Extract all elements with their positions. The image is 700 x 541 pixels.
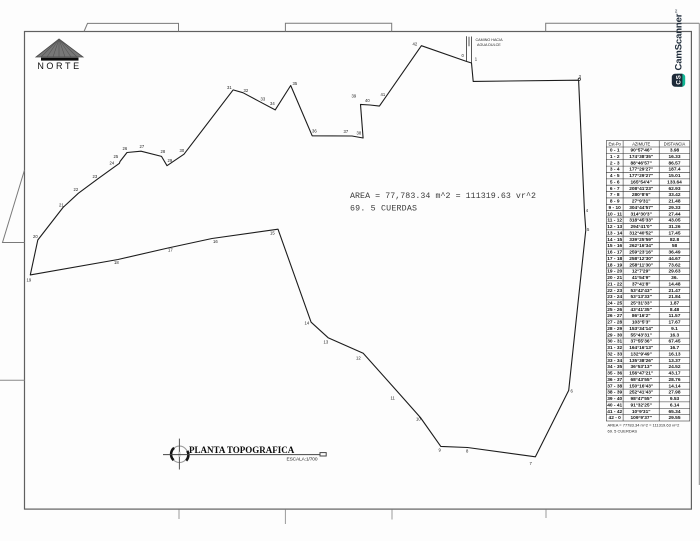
svg-text:PLANTA TOPOGRAFICA: PLANTA TOPOGRAFICA — [189, 445, 295, 455]
svg-text:25°31'33": 25°31'33" — [631, 300, 652, 306]
svg-text:153°34'14": 153°34'14" — [629, 326, 653, 332]
svg-text:30: 30 — [180, 148, 185, 153]
svg-text:252°41'43": 252°41'43" — [629, 390, 653, 396]
svg-text:39: 39 — [352, 94, 357, 99]
svg-text:35 - 36: 35 - 36 — [607, 371, 622, 377]
svg-text:174°38'35": 174°38'35" — [629, 154, 653, 160]
svg-text:17: 17 — [168, 248, 173, 253]
svg-text:7 - 8: 7 - 8 — [610, 192, 620, 198]
svg-text:86°16'2": 86°16'2" — [632, 313, 651, 319]
svg-text:132°9'49": 132°9'49" — [631, 351, 652, 357]
svg-text:156°47'21": 156°47'21" — [629, 371, 653, 377]
svg-text:9.1: 9.1 — [671, 326, 678, 332]
svg-text:44.67: 44.67 — [668, 256, 680, 262]
svg-text:14 - 15: 14 - 15 — [607, 237, 622, 243]
svg-text:16.3: 16.3 — [670, 332, 680, 338]
svg-text:CS: CS — [675, 75, 682, 85]
svg-text:26: 26 — [123, 146, 128, 151]
svg-text:40 - 41: 40 - 41 — [607, 402, 622, 408]
svg-text:8: 8 — [466, 449, 469, 454]
svg-text:258°11'30": 258°11'30" — [629, 262, 653, 268]
svg-text:208°41'23": 208°41'23" — [629, 186, 653, 192]
svg-text:26 - 27: 26 - 27 — [607, 313, 622, 319]
svg-text:1.87: 1.87 — [670, 300, 680, 306]
svg-text:29 - 30: 29 - 30 — [607, 332, 622, 338]
svg-text:34: 34 — [270, 101, 275, 106]
svg-text:86.57: 86.57 — [668, 160, 680, 166]
svg-text:NORTE: NORTE — [37, 61, 81, 71]
svg-text:33: 33 — [261, 97, 266, 102]
svg-text:AREA = 77783.34 m^2 = 111319.6: AREA = 77783.34 m^2 = 111319.63 vr^2 — [608, 423, 681, 428]
svg-text:187.4: 187.4 — [668, 167, 680, 173]
svg-text:0: 0 — [462, 53, 465, 58]
svg-text:32: 32 — [244, 88, 249, 93]
svg-text:31 - 32: 31 - 32 — [607, 345, 622, 351]
svg-text:36: 36 — [312, 129, 317, 134]
svg-text:36.49: 36.49 — [668, 250, 680, 256]
svg-text:21 - 22: 21 - 22 — [607, 281, 622, 287]
svg-text:6 - 7: 6 - 7 — [610, 186, 620, 192]
svg-text:18: 18 — [114, 260, 119, 265]
svg-text:7: 7 — [530, 461, 533, 466]
svg-text:314°30'3": 314°30'3" — [631, 211, 652, 217]
svg-text:1: 1 — [475, 57, 478, 62]
svg-text:33.42: 33.42 — [668, 192, 680, 198]
svg-text:90°57'46": 90°57'46" — [631, 148, 652, 154]
svg-text:21.47: 21.47 — [668, 288, 680, 294]
svg-text:41 - 42: 41 - 42 — [607, 409, 622, 415]
svg-text:2 - 3: 2 - 3 — [610, 160, 620, 166]
svg-text:29: 29 — [168, 158, 173, 163]
svg-text:41: 41 — [381, 92, 386, 97]
svg-text:73.62: 73.62 — [668, 262, 680, 268]
svg-text:ESCALA:1/700: ESCALA:1/700 — [287, 457, 318, 463]
svg-text:177°29'27": 177°29'27" — [629, 173, 653, 179]
svg-text:27.44: 27.44 — [668, 211, 680, 217]
svg-text:4 - 5: 4 - 5 — [610, 173, 620, 179]
svg-text:6: 6 — [571, 389, 574, 394]
svg-text:19: 19 — [27, 278, 32, 283]
svg-text:13 - 14: 13 - 14 — [607, 230, 622, 236]
svg-text:17.67: 17.67 — [668, 320, 680, 326]
svg-text:58: 58 — [672, 243, 678, 249]
svg-text:259°23'16": 259°23'16" — [629, 250, 653, 256]
svg-text:65.34: 65.34 — [668, 409, 680, 415]
svg-text:280°8'6": 280°8'6" — [632, 192, 651, 198]
svg-text:23: 23 — [93, 174, 98, 179]
svg-text:21.84: 21.84 — [668, 294, 680, 300]
svg-text:294°41'0": 294°41'0" — [631, 224, 652, 230]
svg-text:11 - 12: 11 - 12 — [607, 218, 622, 224]
svg-text:13.37: 13.37 — [668, 358, 680, 364]
svg-text:5: 5 — [587, 227, 590, 232]
svg-text:18 - 19: 18 - 19 — [607, 262, 622, 268]
svg-text:0 - 1: 0 - 1 — [610, 148, 620, 154]
svg-text:69. 5 CUERDAS: 69. 5 CUERDAS — [350, 205, 417, 214]
svg-text:103°5'3": 103°5'3" — [632, 320, 651, 326]
svg-text:10: 10 — [416, 417, 421, 422]
svg-text:12: 12 — [356, 356, 361, 361]
svg-text:15: 15 — [270, 231, 275, 236]
svg-text:22: 22 — [74, 187, 79, 192]
svg-text:40: 40 — [365, 98, 370, 103]
svg-text:37: 37 — [344, 129, 349, 134]
svg-text:33 - 34: 33 - 34 — [607, 358, 622, 364]
svg-text:28 - 29: 28 - 29 — [607, 326, 622, 332]
svg-text:8 - 9: 8 - 9 — [610, 199, 620, 205]
svg-text:36 - 37: 36 - 37 — [607, 377, 622, 383]
svg-text:21: 21 — [59, 203, 64, 208]
svg-text:DISTANCIA: DISTANCIA — [664, 141, 686, 146]
svg-text:258°12'30": 258°12'30" — [629, 256, 653, 262]
svg-text:39 - 40: 39 - 40 — [607, 396, 622, 402]
svg-text:68°43'55": 68°43'55" — [631, 377, 652, 383]
svg-text:Est-Po: Est-Po — [609, 141, 622, 146]
svg-text:88°46'57": 88°46'57" — [631, 160, 652, 166]
svg-text:69. 5 CUERDAS: 69. 5 CUERDAS — [608, 429, 638, 434]
svg-text:5 - 6: 5 - 6 — [610, 179, 620, 185]
svg-text:24 - 25: 24 - 25 — [607, 300, 622, 306]
svg-text:24.52: 24.52 — [668, 364, 680, 370]
svg-text:109°9'37": 109°9'37" — [631, 415, 652, 421]
svg-text:133.64: 133.64 — [667, 179, 682, 185]
svg-text:42 - 0: 42 - 0 — [609, 415, 622, 421]
svg-text:37 - 38: 37 - 38 — [607, 383, 622, 389]
svg-text:38 - 39: 38 - 39 — [607, 390, 622, 396]
svg-text:34 - 35: 34 - 35 — [607, 364, 622, 370]
svg-text:10°9'31": 10°9'31" — [632, 409, 651, 415]
svg-text:11: 11 — [391, 396, 396, 401]
svg-text:165°54'4": 165°54'4" — [631, 179, 652, 185]
svg-text:38: 38 — [357, 131, 362, 136]
svg-text:31: 31 — [227, 85, 232, 90]
svg-text:98°47'55": 98°47'55" — [631, 396, 652, 402]
svg-text:24: 24 — [110, 161, 115, 166]
svg-text:29.33: 29.33 — [668, 205, 680, 211]
svg-text:16 - 17: 16 - 17 — [607, 250, 622, 256]
svg-text:9: 9 — [439, 448, 442, 453]
svg-text:AGUA DULCE: AGUA DULCE — [477, 43, 501, 47]
svg-text:29.63: 29.63 — [668, 269, 680, 275]
svg-text:25: 25 — [114, 154, 119, 159]
svg-text:23 - 24: 23 - 24 — [607, 294, 622, 300]
svg-text:15.01: 15.01 — [668, 173, 680, 179]
svg-text:21.48: 21.48 — [668, 199, 680, 205]
svg-text:262°16'34": 262°16'34" — [629, 243, 653, 249]
svg-text:177°29'27": 177°29'27" — [629, 167, 653, 173]
svg-text:20 - 21: 20 - 21 — [607, 275, 622, 281]
svg-text:37°55'36": 37°55'36" — [631, 339, 652, 345]
svg-text:12 - 13: 12 - 13 — [607, 224, 622, 230]
svg-text:11.57: 11.57 — [669, 313, 681, 319]
svg-text:43°41'35": 43°41'35" — [631, 307, 652, 313]
svg-text:AREA = 77,783.34 m^2 = 111319.: AREA = 77,783.34 m^2 = 111319.63 vr^2 — [350, 192, 536, 201]
svg-text:1 - 2: 1 - 2 — [610, 154, 620, 160]
svg-text:304°44'57": 304°44'57" — [629, 205, 653, 211]
svg-text:35: 35 — [293, 81, 298, 86]
svg-text:19 - 20: 19 - 20 — [607, 269, 622, 275]
svg-text:15 - 16: 15 - 16 — [607, 243, 622, 249]
svg-text:25 - 26: 25 - 26 — [607, 307, 622, 313]
svg-text:42: 42 — [413, 42, 418, 47]
svg-text:6.14: 6.14 — [670, 402, 680, 408]
svg-text:AZIMUTE: AZIMUTE — [632, 141, 650, 146]
svg-text:43.17: 43.17 — [668, 371, 680, 377]
svg-text:43.05: 43.05 — [668, 218, 680, 224]
svg-text:27: 27 — [140, 144, 145, 149]
svg-text:9.53: 9.53 — [670, 396, 680, 402]
svg-text:17.45: 17.45 — [668, 230, 680, 236]
svg-text:36°53'13": 36°53'13" — [631, 364, 652, 370]
svg-text:27 - 28: 27 - 28 — [607, 320, 622, 326]
svg-text:CAMINO HACIA: CAMINO HACIA — [476, 38, 504, 42]
svg-text:4: 4 — [586, 208, 589, 213]
svg-text:67.45: 67.45 — [668, 339, 680, 345]
svg-text:53°42'43": 53°42'43" — [631, 288, 652, 294]
svg-text:30 - 31: 30 - 31 — [607, 339, 622, 345]
svg-text:8.48: 8.48 — [670, 307, 680, 313]
svg-text:312°40'52": 312°40'52" — [629, 230, 653, 236]
svg-text:9 - 10: 9 - 10 — [609, 205, 622, 211]
svg-text:36.: 36. — [671, 275, 678, 281]
svg-text:150°16'43": 150°16'43" — [629, 383, 653, 389]
svg-text:339°25'59": 339°25'59" — [629, 237, 653, 243]
svg-text:164°16'13": 164°16'13" — [629, 345, 653, 351]
svg-text:12°7'29": 12°7'29" — [632, 269, 651, 275]
svg-text:62.93: 62.93 — [668, 186, 680, 192]
svg-text:37°41'8": 37°41'8" — [632, 281, 651, 287]
svg-text:3: 3 — [579, 74, 582, 79]
svg-text:28.76: 28.76 — [668, 377, 680, 383]
svg-text:91°32'25": 91°32'25" — [631, 402, 652, 408]
svg-text:32 - 33: 32 - 33 — [607, 351, 622, 357]
svg-text:16: 16 — [213, 239, 218, 244]
svg-text:16.33: 16.33 — [668, 154, 680, 160]
svg-text:55°43'31": 55°43'31" — [631, 332, 652, 338]
svg-text:27.98: 27.98 — [668, 390, 680, 396]
svg-text:28: 28 — [161, 149, 166, 154]
svg-text:CamScanner: CamScanner — [674, 13, 685, 70]
svg-text:17 - 18: 17 - 18 — [607, 256, 622, 262]
svg-text:318°45'33": 318°45'33" — [629, 218, 653, 224]
svg-text:22 - 23: 22 - 23 — [607, 288, 622, 294]
svg-text:10 - 11: 10 - 11 — [607, 211, 622, 217]
svg-text:29.55: 29.55 — [668, 415, 680, 421]
svg-text:82.8: 82.8 — [670, 237, 680, 243]
svg-text:135°38'26": 135°38'26" — [629, 358, 653, 364]
svg-text:14.48: 14.48 — [668, 281, 680, 287]
svg-text:3 - 4: 3 - 4 — [610, 167, 620, 173]
svg-text:20: 20 — [33, 234, 38, 239]
svg-text:16.13: 16.13 — [668, 351, 680, 357]
svg-text:41°54'9": 41°54'9" — [632, 275, 651, 281]
svg-text:™: ™ — [675, 9, 680, 14]
svg-text:31.26: 31.26 — [668, 224, 680, 230]
svg-text:13: 13 — [324, 340, 329, 345]
svg-text:14.14: 14.14 — [668, 383, 680, 389]
svg-text:53°13'33": 53°13'33" — [631, 294, 652, 300]
svg-text:27°9'31": 27°9'31" — [632, 199, 651, 205]
svg-text:16.7: 16.7 — [670, 345, 680, 351]
svg-text:3.98: 3.98 — [670, 148, 680, 154]
svg-text:14: 14 — [305, 321, 310, 326]
